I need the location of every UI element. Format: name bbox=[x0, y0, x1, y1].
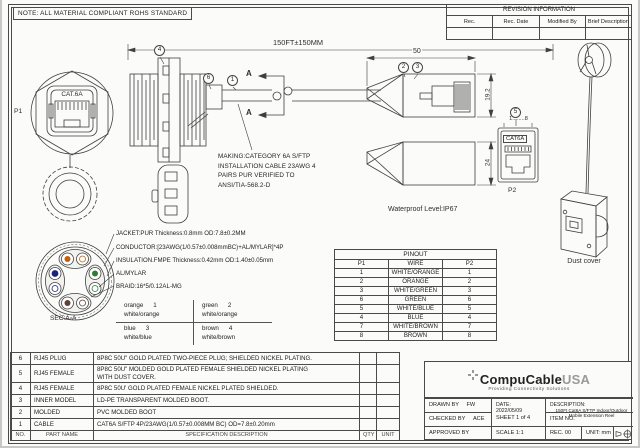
cat6a-jack-label: CAT.6A bbox=[52, 91, 92, 98]
molded-plug-top-view bbox=[367, 74, 475, 117]
sheet-value: SHEET 1 of 4 bbox=[496, 415, 530, 421]
construction-insulation: INSULATION.FMPE Thickness:0.42mm OD:1.40… bbox=[116, 257, 273, 264]
pair-color-name: brown bbox=[202, 325, 219, 332]
dim-overall-line bbox=[128, 44, 553, 60]
parts-spec-line1: 8P8C 50U" MOLDED GOLD PLATED FEMALE SHIE… bbox=[97, 366, 356, 374]
making-line-3: PAIRS PUR VERIFIED TO bbox=[218, 171, 316, 181]
sheet-cell: SHEET 1 of 4 bbox=[491, 412, 545, 426]
making-note: MAKING:CATEGORY 6A S/FTP INSTALLATION CA… bbox=[218, 152, 316, 190]
pair-color-name: orange bbox=[124, 302, 143, 309]
p2-label: P2 bbox=[508, 187, 516, 194]
pinout-row: 3WHITE/GREEN3 bbox=[335, 287, 497, 296]
checked-by-cell: CHECKED BY ACE bbox=[425, 412, 491, 426]
approved-by-label: APPROVED BY bbox=[429, 430, 469, 436]
pair-color-table: orange1 white/orange green2 white/orange… bbox=[116, 300, 272, 345]
pair-pin: 4 bbox=[229, 325, 232, 332]
pair-pin: 3 bbox=[146, 325, 149, 332]
dust-cover-drawing bbox=[561, 191, 608, 257]
pinout-title: PINOUT bbox=[335, 250, 497, 260]
balloon-1: 1 bbox=[227, 75, 238, 86]
company-logo: CompuCableUSA Providing Connectivity Sol… bbox=[425, 362, 633, 398]
pinout-header-wire: WIRE bbox=[389, 260, 443, 269]
pinout-row: 6GREEN6 bbox=[335, 296, 497, 305]
rec-value: REC. 00 bbox=[550, 430, 571, 436]
parts-spec-line2: WITH DUST COVER. bbox=[97, 374, 356, 382]
section-cut-marks bbox=[259, 74, 284, 118]
checked-by-value: ACE bbox=[473, 416, 485, 422]
revision-title: REVISION INFORMATION bbox=[447, 5, 632, 16]
parts-table: 6 RJ45 PLUG 8P8C 50U" GOLD PLATED TWO-PI… bbox=[10, 352, 400, 441]
retractable-reel bbox=[578, 43, 611, 193]
pair-stripe: white/brown bbox=[202, 334, 272, 343]
parts-row-5: 5 RJ45 FEMALE 8P8C 50U" MOLDED GOLD PLAT… bbox=[11, 365, 400, 383]
pair-green: green2 white/orange bbox=[194, 300, 272, 323]
dim-50-label: 50 bbox=[412, 48, 422, 55]
parts-footer: NO. PART NAME SPECIFICATION DESCRIPTION … bbox=[11, 431, 400, 441]
company-name: CompuCableUSA bbox=[425, 370, 633, 387]
drawn-by-cell: DRAWN BY FW bbox=[425, 398, 491, 412]
pair-stripe: white/orange bbox=[124, 311, 193, 320]
dim-19-2-label: 19.2 bbox=[485, 84, 492, 106]
construction-conductor: CONDUCTOR:[23AWG(1/0.57±0.008mmBC)+AL/MY… bbox=[116, 244, 283, 251]
pair-orange: orange1 white/orange bbox=[116, 300, 194, 323]
cable-break bbox=[273, 92, 281, 100]
pair-pin: 1 bbox=[153, 302, 156, 309]
pair-color-name: blue bbox=[124, 325, 136, 332]
parts-row-3: 3INNER MODELLD-PE TRANSPARENT MOLDED BOO… bbox=[11, 395, 400, 407]
rohs-note: NOTE: ALL MATERIAL COMPLIANT ROHS STANDA… bbox=[13, 7, 192, 20]
pair-pin: 2 bbox=[228, 302, 231, 309]
company-name-bold: CompuCable bbox=[480, 372, 562, 387]
making-line-2: INSTALLATION CABLE 23AWG 4 bbox=[218, 162, 316, 172]
pinout-table: PINOUT P1 WIRE P2 1WHITE/ORANGE1 2ORANGE… bbox=[334, 249, 497, 341]
pair-brown: brown4 white/brown bbox=[194, 323, 272, 345]
construction-jacket: JACKET:PUR Thickness:0.8mm OD:7.8±0.2MM bbox=[116, 230, 246, 237]
making-line-1: MAKING:CATEGORY 6A S/FTP bbox=[218, 152, 316, 162]
item-cell: ITEM NO. bbox=[545, 412, 633, 426]
cable-cross-section bbox=[36, 242, 114, 320]
approved-by-cell: APPROVED BY bbox=[425, 426, 491, 441]
waterproof-label: Waterproof Level:IP67 bbox=[388, 206, 457, 213]
cable-line bbox=[222, 87, 381, 101]
pinout-header-p1: P1 bbox=[335, 260, 389, 269]
revision-table: REVISION INFORMATION Rec. Rec. Date Modi… bbox=[446, 4, 632, 40]
coupling-ring bbox=[43, 167, 97, 221]
projection-symbol-icon bbox=[615, 429, 633, 439]
section-arrow-bottom-label: A bbox=[246, 108, 252, 117]
balloon-3: 3 bbox=[412, 62, 423, 73]
section-label: SEC:A-A bbox=[50, 315, 76, 322]
dust-cover-label: Dust cover bbox=[558, 258, 610, 265]
pair-stripe: white/blue bbox=[124, 334, 193, 343]
section-arrow-top-label: A bbox=[246, 69, 252, 78]
pinout-row: 2ORANGE2 bbox=[335, 278, 497, 287]
balloon-5: 5 bbox=[510, 107, 521, 118]
scale-value: SCALE 1:1 bbox=[496, 430, 524, 436]
pinout-row: 8BROWN8 bbox=[335, 332, 497, 341]
balloon-2: 2 bbox=[398, 62, 409, 73]
dim-24-label: 24 bbox=[485, 152, 492, 174]
rec-cell: REC. 00 bbox=[545, 426, 581, 441]
revision-col-date: Rec. Date bbox=[493, 16, 539, 28]
scale-cell: SCALE 1:1 bbox=[491, 426, 545, 441]
drawn-by-value: FW bbox=[467, 402, 476, 408]
p1-front-view bbox=[31, 71, 113, 168]
making-line-4: ANSI/TIA-568.2-D bbox=[218, 181, 316, 191]
drawing-sheet: NOTE: ALL MATERIAL COMPLIANT ROHS STANDA… bbox=[0, 0, 640, 448]
pair-blue: blue3 white/blue bbox=[116, 323, 194, 345]
pair-color-name: green bbox=[202, 302, 218, 309]
logo-icon bbox=[468, 370, 478, 380]
revision-col-desc: Brief Description bbox=[585, 16, 631, 28]
p1-label: P1 bbox=[14, 108, 22, 115]
balloon-leaders bbox=[160, 57, 418, 90]
pinout-row: 4BLUE4 bbox=[335, 314, 497, 323]
projection-symbol-cell bbox=[613, 426, 633, 441]
construction-almylar: AL/MYLAR bbox=[116, 270, 146, 277]
title-block: CompuCableUSA Providing Connectivity Sol… bbox=[424, 361, 632, 440]
revision-empty-row bbox=[447, 28, 632, 40]
p2-front-view bbox=[498, 119, 538, 182]
balloon-4: 4 bbox=[154, 45, 165, 56]
item-label: ITEM NO. bbox=[550, 416, 575, 422]
drawn-by-label: DRAWN BY bbox=[429, 402, 459, 408]
protective-cap bbox=[152, 165, 188, 223]
cat6a-female-label: CAT6A bbox=[503, 135, 527, 143]
revision-col-rec: Rec. bbox=[447, 16, 493, 28]
pinout-header-p2: P2 bbox=[443, 260, 497, 269]
pinout-row: 1WHITE/ORANGE1 bbox=[335, 269, 497, 278]
construction-braid: BRAID:16*5/0.12AL-MG bbox=[116, 283, 182, 290]
parts-row-4: 4RJ45 FEMALE8P8C 50U' GOLD PLATED FEMALE… bbox=[11, 383, 400, 395]
parts-row-1: 1CABLECAT6A S/FTP 4P/23AWG(1/0.57±0.008M… bbox=[11, 419, 400, 431]
parts-row-2: 2MOLDEDPVC MOLDED BOOT bbox=[11, 407, 400, 419]
company-tagline: Providing Connectivity Solutions bbox=[425, 387, 633, 392]
molded-plug-bottom-view bbox=[367, 142, 475, 185]
parts-row-6: 6 RJ45 PLUG 8P8C 50U" GOLD PLATED TWO-PI… bbox=[11, 353, 400, 365]
unit-cell: UNIT: mm bbox=[581, 426, 613, 441]
pair-stripe: white/orange bbox=[202, 311, 272, 320]
company-name-light: USA bbox=[562, 372, 590, 387]
pinout-row: 7WHITE/BROWN7 bbox=[335, 323, 497, 332]
checked-by-label: CHECKED BY bbox=[429, 416, 465, 422]
revision-col-modified: Modified By bbox=[539, 16, 585, 28]
balloon-6: 6 bbox=[203, 73, 214, 84]
pinout-row: 5WHITE/BLUE5 bbox=[335, 305, 497, 314]
unit-value: UNIT: mm bbox=[586, 430, 611, 436]
dim-overall-label: 150FT±150MM bbox=[272, 38, 324, 47]
